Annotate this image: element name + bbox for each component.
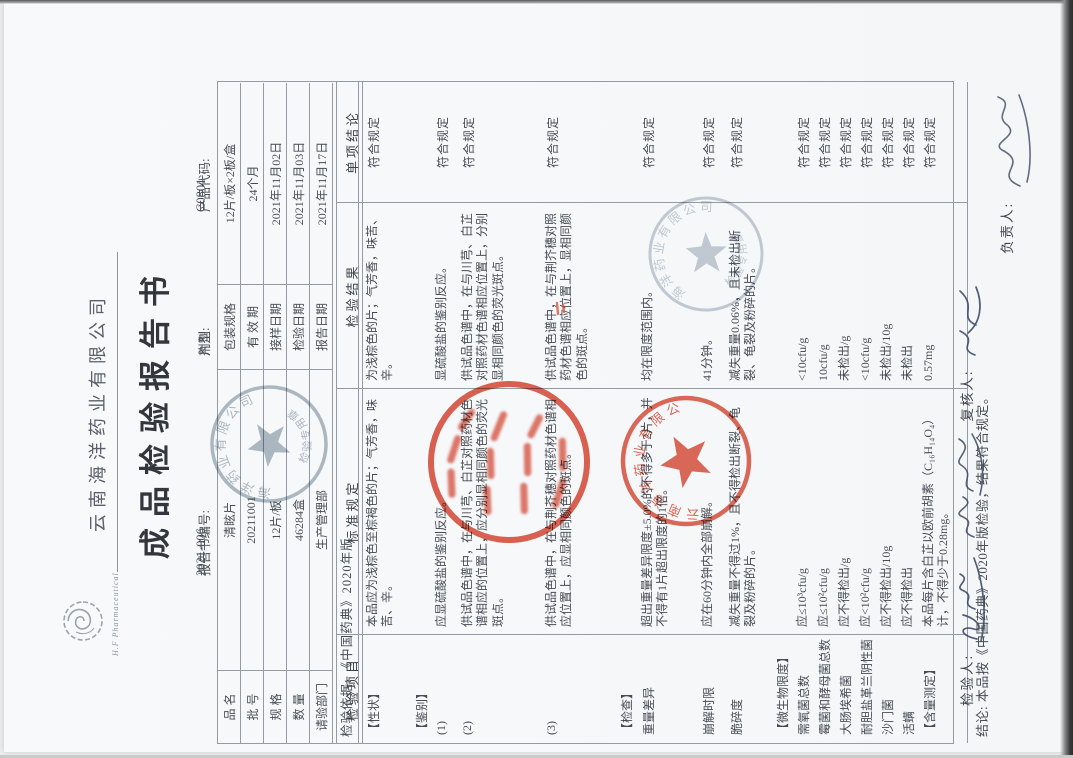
info-label: 检验日期 [287,285,310,370]
row-conclusion: 符合规定 [877,82,898,203]
row-conclusion: 符合规定 [698,82,726,203]
inspector-label: 检验人: [960,654,975,706]
row-standard [772,389,793,635]
info-label: 品 名 [218,671,241,743]
header-conclusion: 单项结论 [337,82,362,203]
table-row: 耐胆盐革兰阴性菌 应<10²cfu/g <10cfu/g 符合规定 [856,82,877,743]
row-conclusion: 符合规定 [793,82,814,203]
row-conclusion: 符合规定 [542,82,616,203]
row-item: 耐胆盐革兰阴性菌 [856,635,877,743]
info-label: 有 效 期 [241,285,264,370]
reviewer-label: 复核人: [960,369,975,421]
svg-text:检验专用章: 检验专用章 [714,226,758,293]
row-conclusion: 符合规定 [814,82,835,203]
row-result: 为浅棕色的片；气芳香，味苦、辛。 [363,203,411,389]
row-item: 活螨 [898,635,919,743]
row-result [411,203,432,389]
row-conclusion [411,82,432,203]
info-label: 接样日期 [264,285,287,370]
table-row: 【性状】 本品应为浅棕色至棕褐色的片；气芳香，味苦、辛。 为浅棕色的片；气芳香，… [363,82,411,743]
row-result: <10cfu/g [856,203,877,389]
row-item: 【鉴别】 [411,635,432,743]
row-standard: 应<10²cfu/g [856,389,877,635]
info-value: 24个月 [241,83,264,285]
info-value: 12片/板×2板/盒 [218,83,241,285]
row-standard: 应≤10²cfu/g [814,389,835,635]
header-result: 检验结果 [337,203,362,389]
row-result: 未检出 [898,203,919,389]
responsible-signature [990,94,1032,194]
row-result: <10cfu/g [793,203,814,389]
row-standard: 应不得检出/10g [877,389,898,635]
table-row: 霉菌和酵母菌总数 应≤10²cfu/g 10cfu/g 符合规定 [814,82,835,743]
table-row: 沙门菌 应不得检出/10g 未检出/10g 符合规定 [877,82,898,743]
info-label: 规 格 [264,671,287,743]
company-name: 云南海洋药业有限公司 [84,252,118,572]
scanned-report-screenshot: H.F Pharmaceutical 云南海洋药业有限公司 成品检验报告书 报告… [0,0,1073,758]
row-conclusion: 符合规定 [458,82,542,203]
dosage-form-value: 片剂 [194,331,213,356]
row-conclusion: 符合规定 [363,82,411,203]
inspection-table-header: 检验项目 标准规定 检验结果 单项结论 [337,82,363,743]
row-item: 沙门菌 [877,635,898,743]
row-conclusion [772,82,793,203]
reviewer-signature [951,284,987,362]
info-label: 包装规格 [218,285,241,370]
inspector-signature [950,554,988,646]
info-label: 批 号 [241,671,264,743]
info-value: 2021年11月17日 [310,83,333,285]
page-title: 成品检验报告书 [130,237,175,587]
row-item: 大肠埃希菌 [835,635,856,743]
logo-swirl-icon [60,598,106,644]
product-code-value: C0801 [194,179,209,212]
inspector-signature-2 [950,431,988,543]
row-item: 【性状】 [363,635,411,743]
red-ring-stamp [410,363,609,562]
responsible-block: 负责人: [996,90,1032,254]
row-conclusion: 符合规定 [432,82,458,203]
row-conclusion: 符合规定 [835,82,856,203]
row-standard: 本品应为浅棕色至棕褐色的片；气芳香，味苦、辛。 [363,389,411,635]
row-conclusion [616,82,638,203]
row-item: (3) [542,635,616,743]
row-item: (1) [432,635,458,743]
row-result: 10cfu/g [814,203,835,389]
signature-row: 检验人: 复核人: [956,46,988,706]
row-item: 霉菌和酵母菌总数 [814,635,835,743]
info-value: 2021年11月02日 [264,83,287,285]
scan-edge-top [0,0,1073,4]
report-no-value: 2021-006 [194,528,209,576]
info-label: 数 量 [287,671,310,743]
row-standard: 应≤10³cfu/g [793,389,814,635]
table-row: 【微生物限度】 [772,82,793,743]
row-item: 【微生物限度】 [772,635,793,743]
logo-caption: H.F Pharmaceutical [111,586,120,656]
row-standard: 应不得检出 [898,389,919,635]
row-item: 崩解时限 [698,635,726,743]
row-result: 未检出/10g [877,203,898,389]
header-item: 检验项目 [337,635,362,743]
header-standard: 标准规定 [337,389,362,635]
row-result: 未检出/g [835,203,856,389]
row-result: 供试品色谱中，在与川芎、白芷对照药材色谱相应位置上，分别显相同颜色的荧光斑点。 [458,203,542,389]
row-item: 【检查】 [616,635,638,743]
row-result: 显硫酸盐的鉴别反应。 [432,203,458,389]
row-item: 重量差异 [638,635,698,743]
row-conclusion: 符合规定 [726,82,772,203]
row-conclusion: 符合规定 [898,82,919,203]
company-logo: H.F Pharmaceutical [60,586,120,656]
scan-edge-right [1060,0,1073,758]
info-label: 报告日期 [310,285,333,370]
red-tick-mark [554,300,568,316]
responsible-label: 负责人: [1000,202,1015,254]
row-item: (2) [458,635,542,743]
table-row: 需氧菌总数 应≤10³cfu/g <10cfu/g 符合规定 [793,82,814,743]
row-result: 供试品色谱中，在与荆芥穗对照药材色谱相应位置上，显相同颜色的斑点。 [542,203,616,389]
row-conclusion: 符合规定 [856,82,877,203]
table-row: 大肠埃希菌 应不得检出/g 未检出/g 符合规定 [835,82,856,743]
info-value: 2021年11月03日 [287,83,310,285]
table-row: 活螨 应不得检出 未检出 符合规定 [898,82,919,743]
red-company-stamp: 云南海洋药业有限公司 [603,378,770,545]
row-standard: 应不得检出/g [835,389,856,635]
info-label: 请验部门 [310,671,333,743]
report-document: H.F Pharmaceutical 云南海洋药业有限公司 成品检验报告书 报告… [4,2,1064,752]
row-item: 需氧菌总数 [793,635,814,743]
row-item: 脆碎度 [726,635,772,743]
